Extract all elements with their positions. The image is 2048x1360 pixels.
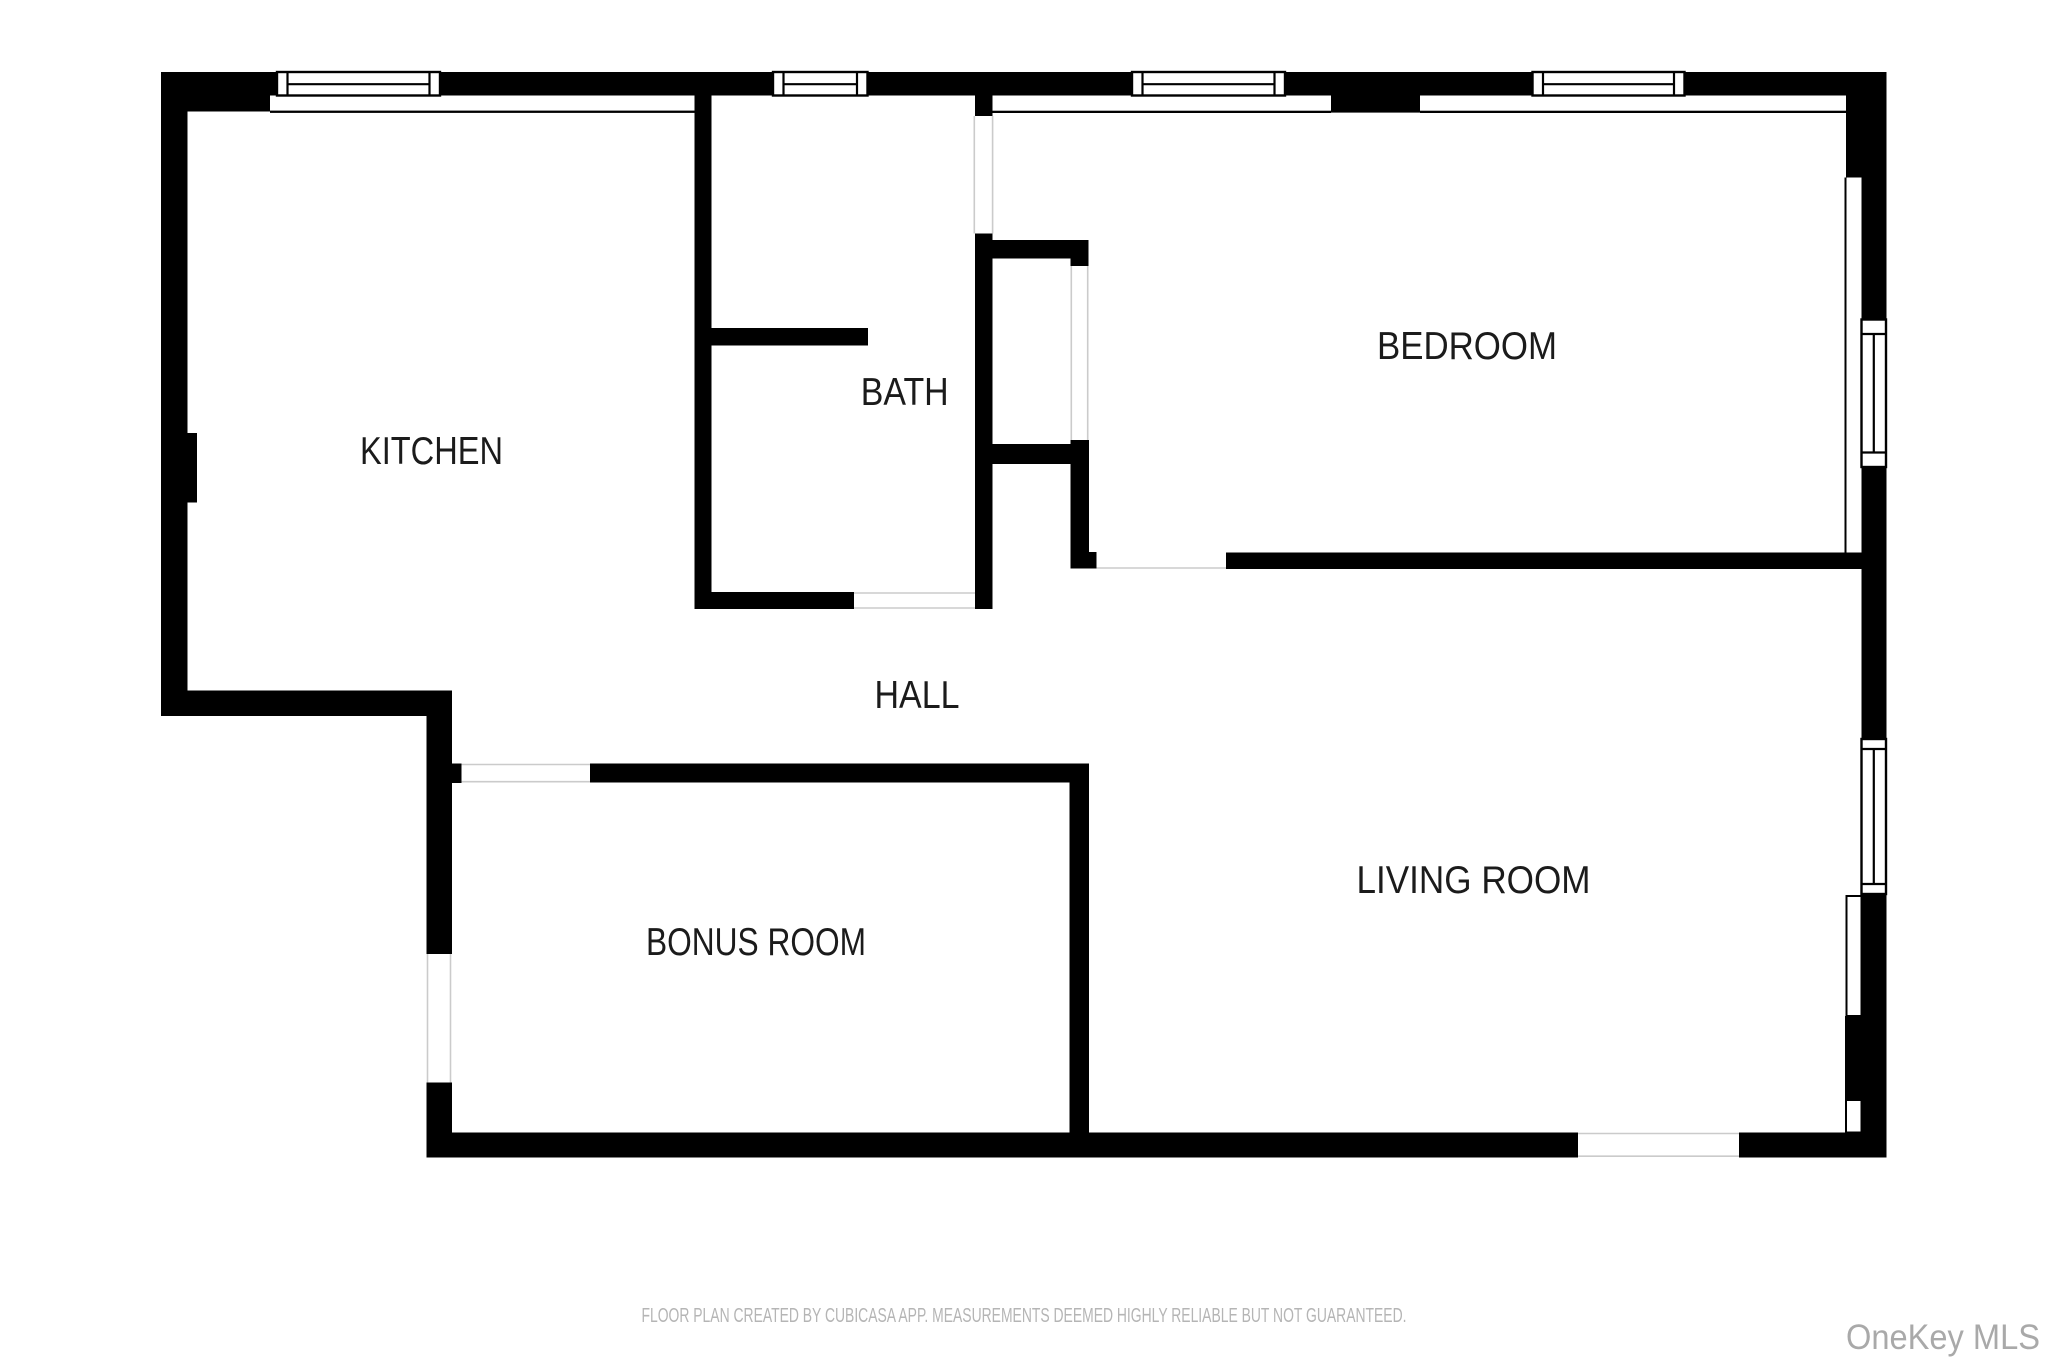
svg-text:FLOOR PLAN CREATED BY CUBICASA: FLOOR PLAN CREATED BY CUBICASA APP. MEAS… [642, 1304, 1407, 1327]
svg-text:HALL: HALL [875, 674, 960, 717]
svg-text:OneKey MLS: OneKey MLS [1846, 1317, 2040, 1357]
svg-text:BATH: BATH [861, 371, 949, 414]
svg-text:BONUS ROOM: BONUS ROOM [646, 921, 866, 964]
svg-text:KITCHEN: KITCHEN [360, 430, 503, 473]
svg-text:LIVING ROOM: LIVING ROOM [1357, 859, 1591, 902]
svg-text:BEDROOM: BEDROOM [1377, 325, 1557, 368]
